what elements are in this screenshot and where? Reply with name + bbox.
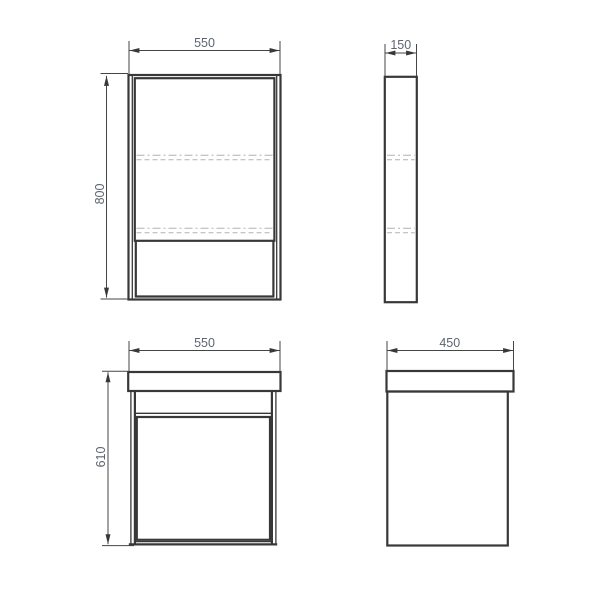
vanity-width-label: 550: [194, 336, 215, 350]
view-vanity-front: [128, 372, 280, 544]
hidden-shelf-lines: [137, 155, 415, 233]
cabinet-height-label: 800: [93, 184, 107, 205]
view-vanity-side: [387, 371, 514, 546]
vanity-side-countertop: [387, 371, 514, 392]
furniture-dimension-drawing: 550 800 150 550 610 450: [0, 0, 600, 600]
view-cabinet-side: [385, 77, 417, 302]
vanity-side-body: [387, 392, 508, 546]
vanity-height-label: 610: [94, 447, 108, 468]
structure-lines: [128, 75, 513, 546]
dimension-lines: [101, 41, 514, 546]
cabinet-outer-frame: [129, 75, 281, 300]
vanity-countertop: [128, 372, 280, 391]
technical-drawing-canvas: 550 800 150 550 610 450: [0, 0, 600, 600]
cabinet-width-label: 550: [194, 36, 215, 50]
view-cabinet-front: [129, 75, 281, 300]
vanity-door-panel: [137, 417, 270, 540]
cabinet-depth-label: 150: [390, 38, 411, 52]
cabinet-side-outline: [385, 77, 417, 302]
vanity-depth-label: 450: [439, 336, 460, 350]
